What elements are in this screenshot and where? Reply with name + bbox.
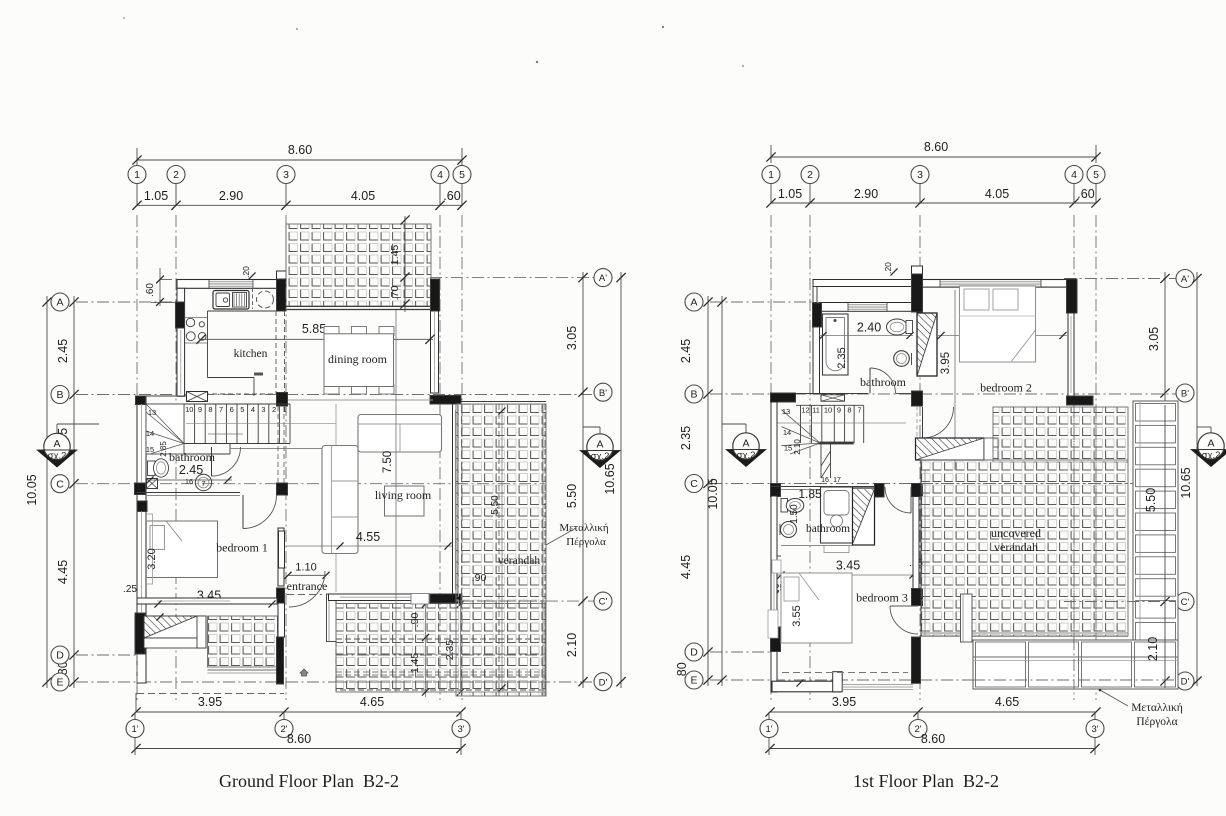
svg-text:5.50: 5.50 [490,495,501,515]
svg-text:4.55: 4.55 [356,530,380,544]
svg-text:1': 1' [131,724,138,735]
svg-text:C: C [56,478,64,490]
svg-text:5: 5 [1093,169,1099,181]
svg-text:Μεταλλική: Μεταλλική [559,522,609,534]
svg-text:.20: .20 [241,266,251,278]
svg-text:B: B [56,389,63,401]
svg-text:bedroom 3: bedroom 3 [856,591,908,605]
svg-text:σχ.2: σχ.2 [48,451,67,462]
svg-text:.60: .60 [443,189,460,203]
svg-text:2.10: 2.10 [793,439,802,455]
svg-text:7: 7 [219,405,223,414]
svg-text:3.05: 3.05 [565,326,579,350]
svg-text:1': 1' [765,724,772,735]
svg-text:verandah: verandah [498,555,540,567]
svg-text:bedroom 1: bedroom 1 [216,541,268,555]
svg-text:2: 2 [272,405,276,414]
svg-text:10.65: 10.65 [603,463,617,494]
svg-text:16: 16 [821,477,829,484]
svg-text:4.45: 4.45 [56,560,70,584]
svg-text:1.50: 1.50 [789,504,800,524]
svg-text:10: 10 [824,406,832,415]
svg-text:4: 4 [251,405,255,414]
svg-text:1: 1 [134,169,140,181]
svg-text:2.45: 2.45 [179,463,203,477]
svg-text:14: 14 [783,428,791,437]
svg-text:Ground Floor Plan B2-2: Ground Floor Plan B2-2 [219,771,399,791]
svg-text:A: A [742,438,749,450]
svg-text:4: 4 [1071,169,1077,181]
svg-text:1.10: 1.10 [295,562,316,574]
svg-text:1.85: 1.85 [798,487,822,501]
svg-text:1st Floor Plan B2-2: 1st Floor Plan B2-2 [853,771,999,791]
svg-text:B: B [690,389,697,401]
svg-text:8.60: 8.60 [288,143,312,157]
svg-text:9: 9 [837,406,841,415]
svg-text:3.95: 3.95 [198,695,222,709]
svg-text:5.50: 5.50 [565,484,579,508]
svg-text:σχ.2: σχ.2 [591,451,610,462]
svg-text:E: E [56,677,63,689]
svg-text:B': B' [599,388,607,399]
svg-text:7: 7 [857,406,861,415]
svg-text:.90: .90 [409,613,421,628]
svg-text:8.60: 8.60 [921,732,945,746]
svg-text:2.90: 2.90 [219,189,243,203]
svg-text:E: E [690,675,697,687]
svg-text:.70: .70 [389,286,401,301]
svg-text:3: 3 [917,169,923,181]
svg-text:bathroom: bathroom [169,450,216,464]
svg-text:C': C' [1181,597,1190,608]
svg-text:5.85: 5.85 [302,322,326,336]
svg-text:2.35: 2.35 [444,640,456,661]
svg-text:3.20: 3.20 [146,548,158,569]
svg-text:5.50: 5.50 [1144,488,1158,512]
svg-text:σχ.2: σχ.2 [1202,450,1221,461]
svg-text:1.45: 1.45 [389,245,401,266]
svg-text:Πέργολα: Πέργολα [566,536,606,548]
svg-text:3.95: 3.95 [832,695,856,709]
svg-text:.25: .25 [123,584,137,595]
svg-text:3.55: 3.55 [791,605,803,626]
svg-text:1.45: 1.45 [409,653,421,674]
svg-text:13: 13 [782,407,790,416]
svg-text:3.95: 3.95 [940,352,952,374]
svg-text:2.90: 2.90 [854,187,878,201]
svg-text:verandah: verandah [994,540,1038,554]
svg-text:A: A [690,297,697,309]
svg-text:3.45: 3.45 [836,559,860,573]
svg-text:kitchen: kitchen [234,348,268,360]
svg-text:11: 11 [812,406,820,415]
svg-text:.60: .60 [1077,187,1094,201]
svg-text:2.35: 2.35 [679,426,693,450]
svg-text:D': D' [599,677,608,688]
svg-text:4.05: 4.05 [985,187,1009,201]
svg-text:8: 8 [208,405,212,414]
svg-text:bathroom: bathroom [806,523,850,535]
svg-text:dining room: dining room [328,352,388,366]
svg-text:3: 3 [261,405,265,414]
svg-text:4.65: 4.65 [360,695,384,709]
svg-text:2: 2 [807,169,813,181]
svg-text:7.50: 7.50 [382,451,394,473]
svg-text:entrance: entrance [287,579,328,593]
svg-text:15: 15 [784,444,792,453]
svg-text:A': A' [1181,274,1189,285]
svg-text:Μεταλλική: Μεταλλική [1131,702,1183,714]
svg-text:A: A [56,297,63,309]
svg-text:5: 5 [459,169,465,181]
svg-text:4: 4 [437,169,443,181]
svg-text:bedroom 2: bedroom 2 [980,381,1032,395]
svg-text:.90: .90 [472,572,487,584]
svg-text:2.45: 2.45 [56,339,70,363]
svg-text:C: C [690,478,698,490]
svg-text:1: 1 [283,405,287,414]
svg-text:2.10: 2.10 [565,633,579,657]
svg-text:uncovered: uncovered [991,526,1041,540]
svg-text:5: 5 [240,405,244,414]
svg-text:.60: .60 [145,283,156,297]
svg-text:2.85: 2.85 [159,441,168,457]
svg-text:9: 9 [198,405,202,414]
svg-text:15: 15 [146,445,154,454]
svg-text:2.35: 2.35 [836,347,848,368]
svg-text:2.40: 2.40 [857,321,881,335]
svg-text:10.05: 10.05 [25,474,39,505]
svg-text:3: 3 [283,169,289,181]
svg-text:4.45: 4.45 [679,555,693,579]
svg-text:σχ.2: σχ.2 [737,450,756,461]
svg-text:13: 13 [148,408,156,417]
svg-text:A': A' [599,273,607,284]
svg-text:6: 6 [230,405,234,414]
svg-text:C': C' [599,597,608,608]
svg-text:8: 8 [847,406,851,415]
svg-text:Πέργολα: Πέργολα [1136,716,1177,728]
svg-text:D: D [56,650,64,662]
svg-text:14: 14 [146,429,154,438]
svg-text:2.45: 2.45 [679,339,693,363]
svg-text:3': 3' [457,724,464,735]
svg-text:8.60: 8.60 [287,732,311,746]
svg-text:2: 2 [173,169,179,181]
svg-text:2.10: 2.10 [1146,637,1160,661]
svg-text:A: A [53,438,60,450]
svg-text:1.05: 1.05 [144,189,168,203]
svg-text:1.05: 1.05 [778,187,802,201]
svg-text:living room: living room [375,488,432,502]
svg-text:.20: .20 [883,262,893,274]
svg-text:10.65: 10.65 [1179,467,1193,498]
svg-text:3': 3' [1091,724,1098,735]
svg-text:8.60: 8.60 [924,140,948,154]
svg-text:4.65: 4.65 [995,695,1019,709]
svg-text:D': D' [1181,677,1190,688]
svg-text:3.05: 3.05 [1147,327,1161,351]
svg-text:10: 10 [185,405,193,414]
svg-text:bathroom: bathroom [860,375,907,389]
svg-text:D: D [690,647,698,659]
svg-text:12: 12 [801,406,809,415]
svg-text:A: A [1207,438,1214,450]
svg-text:A: A [596,439,603,451]
svg-text:4.05: 4.05 [351,189,375,203]
svg-text:16: 16 [185,477,193,486]
svg-text:17: 17 [833,477,841,484]
svg-text:B': B' [1181,389,1189,400]
svg-text:1: 1 [768,169,774,181]
